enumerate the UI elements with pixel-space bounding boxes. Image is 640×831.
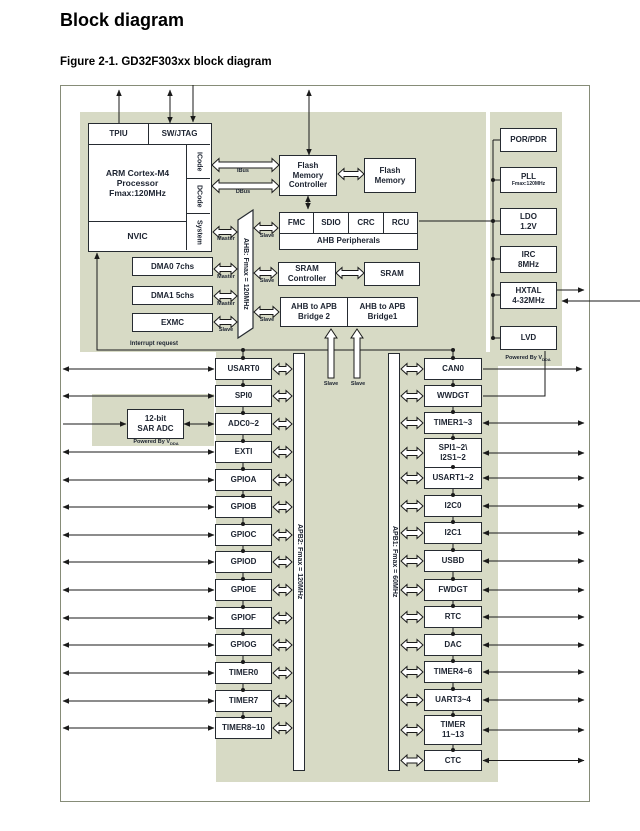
sram-label: SRAM <box>380 269 404 279</box>
ahb-peripherals-label: AHB Peripherals <box>317 236 380 246</box>
box-timer7: TIMER7 <box>215 690 272 712</box>
swjtag-cell: SW/JTAG <box>149 124 210 145</box>
bridge2-line1: AHB to APB <box>291 302 337 312</box>
box-gpioc: GPIOC <box>215 524 272 546</box>
box-wwdgt: WWDGT <box>424 385 482 407</box>
box-spi0: SPI0 <box>215 385 272 407</box>
slave-label: Slave <box>344 381 372 387</box>
hollow-double-arrow <box>401 501 423 512</box>
box-timer8-10: TIMER8~10 <box>215 717 272 739</box>
box-label: TIMER7 <box>229 696 258 706</box>
ahb-peripherals-block: FMC SDIO CRC RCU AHB Peripherals <box>279 212 418 250</box>
hollow-double-arrow <box>401 585 423 596</box>
hollow-double-arrow <box>273 364 292 375</box>
hollow-double-arrow <box>254 268 277 279</box>
hollow-double-arrow <box>338 169 364 180</box>
interrupt-request-label: Interrupt request <box>130 341 222 347</box>
box-label: RTC <box>445 612 461 622</box>
box-label: GPIOE <box>231 585 256 595</box>
slave-label: Slave <box>254 317 280 323</box>
exmc-label: EXMC <box>161 318 184 328</box>
sar-line2: SAR ADC <box>137 424 173 434</box>
box-exti: EXTI <box>215 441 272 463</box>
hollow-double-arrow <box>401 391 423 402</box>
box-label: WWDGT <box>437 391 469 401</box>
box-can0: CAN0 <box>424 358 482 380</box>
box-label: FWDGT <box>438 585 467 595</box>
hollow-double-arrow <box>273 502 292 513</box>
box-label: I2S1~2 <box>440 453 466 463</box>
pll-fmax-label: Fmax:120MHz <box>512 182 545 188</box>
bridge2-slave-arrow <box>325 329 337 378</box>
sdio-cell: SDIO <box>314 213 349 234</box>
apb1-bus-label: APB1: Fmax = 60MHz <box>390 526 398 597</box>
box-rtc: RTC <box>424 606 482 628</box>
box-uart3-4: UART3~4 <box>424 689 482 711</box>
pll-box: PLL Fmax:120MHz <box>500 167 557 193</box>
dma0-label: DMA0 7chs <box>151 262 194 272</box>
hollow-double-arrow <box>273 668 292 679</box>
ibus-label: IBus <box>226 168 260 174</box>
ahb-bus-label: AHB: Fmax = 120MHz <box>238 216 253 332</box>
powered-text: Powered By V <box>505 355 542 361</box>
slave-label: Slave <box>212 327 240 333</box>
hollow-double-arrow <box>273 391 292 402</box>
box-label: CTC <box>445 756 461 766</box>
powered-sub: DDA <box>170 441 179 446</box>
master-label: Master <box>212 274 240 280</box>
flash-line1: Flash <box>380 166 401 176</box>
hxtal-box: HXTAL 4-32MHz <box>500 282 557 309</box>
icode-label: ICode <box>194 152 202 171</box>
box-label: EXTI <box>235 447 253 457</box>
powered-sub: DDA <box>542 357 551 362</box>
box-gpioe: GPIOE <box>215 579 272 601</box>
rcu-cell-label: RCU <box>392 218 409 228</box>
hollow-double-arrow <box>401 755 423 766</box>
apb2-bus-label: APB2: Fmax = 120MHz <box>295 524 303 599</box>
fmc-line2: Memory <box>293 171 324 181</box>
fmc-line3: Controller <box>289 180 327 190</box>
box-label: GPIOF <box>231 613 256 623</box>
powered-by-vdda-label: Powered By VDDA <box>115 439 197 446</box>
nvic-cell: NVIC <box>89 221 186 250</box>
box-label: UART3~4 <box>435 695 471 705</box>
hollow-double-arrow <box>273 696 292 707</box>
apb2-bus: APB2: Fmax = 120MHz <box>293 353 305 771</box>
rcu-cell: RCU <box>384 213 417 234</box>
sram-controller-box: SRAM Controller <box>278 262 336 286</box>
tpiu-label: TPIU <box>109 129 127 139</box>
dcode-label: DCode <box>194 185 202 208</box>
sramc-line2: Controller <box>288 274 326 284</box>
dma1-label: DMA1 5chs <box>151 291 194 301</box>
box-adc0-2: ADC0~2 <box>215 413 272 435</box>
bridge1-line1: AHB to APB <box>360 302 406 312</box>
sar-adc-box: 12-bit SAR ADC <box>127 409 184 439</box>
flash-memory-box: Flash Memory <box>364 158 416 193</box>
ahb-peripherals-band: AHB Peripherals <box>280 234 417 248</box>
box-label: TIMER0 <box>229 668 258 678</box>
box-usbd: USBD <box>424 550 482 572</box>
ahb-apb-bridge2-box: AHB to APB Bridge 2 <box>280 297 348 327</box>
sar-line1: 12-bit <box>145 414 166 424</box>
hollow-double-arrow <box>401 640 423 651</box>
fmc-cell: FMC <box>280 213 314 234</box>
lvd-box: LVD <box>500 326 557 350</box>
flash-memory-controller-box: Flash Memory Controller <box>279 155 337 196</box>
box-usart0: USART0 <box>215 358 272 380</box>
master-label: Master <box>212 236 240 242</box>
hollow-double-arrow <box>401 418 423 429</box>
box-label: GPIOA <box>231 475 257 485</box>
sdio-cell-label: SDIO <box>321 218 341 228</box>
slave-label: Slave <box>317 381 345 387</box>
exmc-box: EXMC <box>132 313 213 332</box>
por-pdr-box: POR/PDR <box>500 128 557 152</box>
fmc-cell-label: FMC <box>288 218 305 228</box>
bridge1-line2: Bridge1 <box>368 312 398 322</box>
hollow-double-arrow <box>214 291 237 302</box>
hxtal-label: HXTAL <box>515 286 541 296</box>
box-label: TIMER1~3 <box>434 418 472 428</box>
hollow-double-arrow <box>273 419 292 430</box>
por-pdr-label: POR/PDR <box>510 135 546 145</box>
tpiu-cell: TPIU <box>89 124 149 145</box>
box-label: DAC <box>444 640 461 650</box>
system-cell: System <box>186 214 210 250</box>
hollow-double-arrow <box>401 556 423 567</box>
box-label: GPIOG <box>230 640 256 650</box>
hollow-double-arrow <box>273 613 292 624</box>
sramc-line1: SRAM <box>295 264 319 274</box>
hollow-double-arrow <box>214 264 237 275</box>
box-label: GPIOD <box>231 557 257 567</box>
hollow-double-arrow <box>401 667 423 678</box>
hollow-double-arrow <box>401 695 423 706</box>
icode-cell: ICode <box>186 145 210 179</box>
dma1-box: DMA1 5chs <box>132 286 213 305</box>
crc-cell-label: CRC <box>357 218 374 228</box>
master-label: Master <box>212 301 240 307</box>
box-label: SPI0 <box>235 391 252 401</box>
hollow-double-arrow <box>401 364 423 375</box>
hollow-double-arrow <box>401 612 423 623</box>
box-gpiog: GPIOG <box>215 634 272 656</box>
flash-line2: Memory <box>375 176 406 186</box>
box-timer0: TIMER0 <box>215 662 272 684</box>
dbus-label: DBus <box>226 189 260 195</box>
system-label: System <box>194 220 202 245</box>
box-label: 11~13 <box>442 730 464 740</box>
ldo-label: LDO <box>520 212 537 222</box>
cpu-block: TPIU SW/JTAG ARM Cortex-M4 Processor Fma… <box>88 123 212 252</box>
hollow-double-arrow <box>273 530 292 541</box>
box-label: I2C1 <box>445 528 462 538</box>
cpu-core-line1: ARM Cortex-M4 <box>106 168 169 178</box>
box-label: TIMER4~6 <box>434 667 472 677</box>
box-label: GPIOB <box>231 502 257 512</box>
slave-label: Slave <box>254 278 280 284</box>
irc-label: IRC <box>522 250 536 260</box>
dma0-box: DMA0 7chs <box>132 257 213 276</box>
hollow-double-arrow <box>254 223 278 234</box>
box-dac: DAC <box>424 634 482 656</box>
box-i2c0: I2C0 <box>424 495 482 517</box>
hollow-double-arrow <box>401 725 423 736</box>
box-gpiof: GPIOF <box>215 607 272 629</box>
box-label: I2C0 <box>445 501 462 511</box>
box-usart1-2: USART1~2 <box>424 467 482 489</box>
lvd-label: LVD <box>521 333 536 343</box>
box-label: ADC0~2 <box>228 419 259 429</box>
ahb-bus-label-text: AHB: Fmax = 120MHz <box>242 238 249 310</box>
cpu-core-label: ARM Cortex-M4 Processor Fmax:120MHz <box>89 145 186 221</box>
box-fwdgt: FWDGT <box>424 579 482 601</box>
hollow-double-arrow <box>273 557 292 568</box>
hollow-double-arrow <box>273 585 292 596</box>
box-timer4-6: TIMER4~6 <box>424 661 482 683</box>
dcode-cell: DCode <box>186 179 210 214</box>
crc-cell: CRC <box>349 213 384 234</box>
box-label: USART1~2 <box>432 473 473 483</box>
hollow-double-arrow <box>401 448 423 459</box>
powered-by-vdda-label: Powered By VDDA <box>489 355 567 362</box>
apb1-bus: APB1: Fmax = 60MHz <box>388 353 400 771</box>
box-spi1-2-i2s1-2: SPI1~2\I2S1~2 <box>424 438 482 468</box>
swjtag-label: SW/JTAG <box>162 129 198 139</box>
box-label: USART0 <box>227 364 259 374</box>
box-gpiod: GPIOD <box>215 551 272 573</box>
box-timer11-13: TIMER11~13 <box>424 715 482 745</box>
bridge2-line2: Bridge 2 <box>298 312 330 322</box>
slave-label: Slave <box>254 233 280 239</box>
cpu-core-line2: Processor <box>117 178 159 188</box>
ldo-voltage-label: 1.2V <box>520 222 536 232</box>
hollow-double-arrow <box>273 475 292 486</box>
box-label: SPI1~2\ <box>439 443 468 453</box>
box-label: TIMER8~10 <box>222 723 265 733</box>
ahb-apb-bridge1-box: AHB to APB Bridge1 <box>347 297 418 327</box>
bridge1-slave-arrow <box>351 329 363 378</box>
fmc-line1: Flash <box>298 161 319 171</box>
irc-box: IRC 8MHz <box>500 246 557 273</box>
nvic-label: NVIC <box>127 231 147 241</box>
box-gpioa: GPIOA <box>215 469 272 491</box>
box-timer1-3: TIMER1~3 <box>424 412 482 434</box>
hollow-double-arrow <box>273 447 292 458</box>
hollow-double-arrow <box>336 268 364 279</box>
sram-box: SRAM <box>364 262 420 286</box>
powered-text: Powered By V <box>133 439 170 445</box>
box-gpiob: GPIOB <box>215 496 272 518</box>
cpu-core-line3: Fmax:120MHz <box>109 188 166 198</box>
box-label: CAN0 <box>442 364 464 374</box>
box-label: TIMER <box>441 720 466 730</box>
hollow-double-arrow <box>273 723 292 734</box>
box-i2c1: I2C1 <box>424 522 482 544</box>
hollow-double-arrow <box>273 640 292 651</box>
ldo-box: LDO 1.2V <box>500 208 557 235</box>
hxtal-freq-label: 4-32MHz <box>512 296 544 306</box>
hollow-double-arrow <box>401 528 423 539</box>
box-ctc: CTC <box>424 750 482 771</box>
page: { "page": { "title": "Block diagram", "f… <box>0 0 640 831</box>
hollow-double-arrow <box>214 317 237 328</box>
box-label: USBD <box>442 556 465 566</box>
box-label: GPIOC <box>231 530 257 540</box>
hollow-double-arrow <box>254 307 279 318</box>
irc-freq-label: 8MHz <box>518 260 539 270</box>
hollow-double-arrow <box>401 473 423 484</box>
